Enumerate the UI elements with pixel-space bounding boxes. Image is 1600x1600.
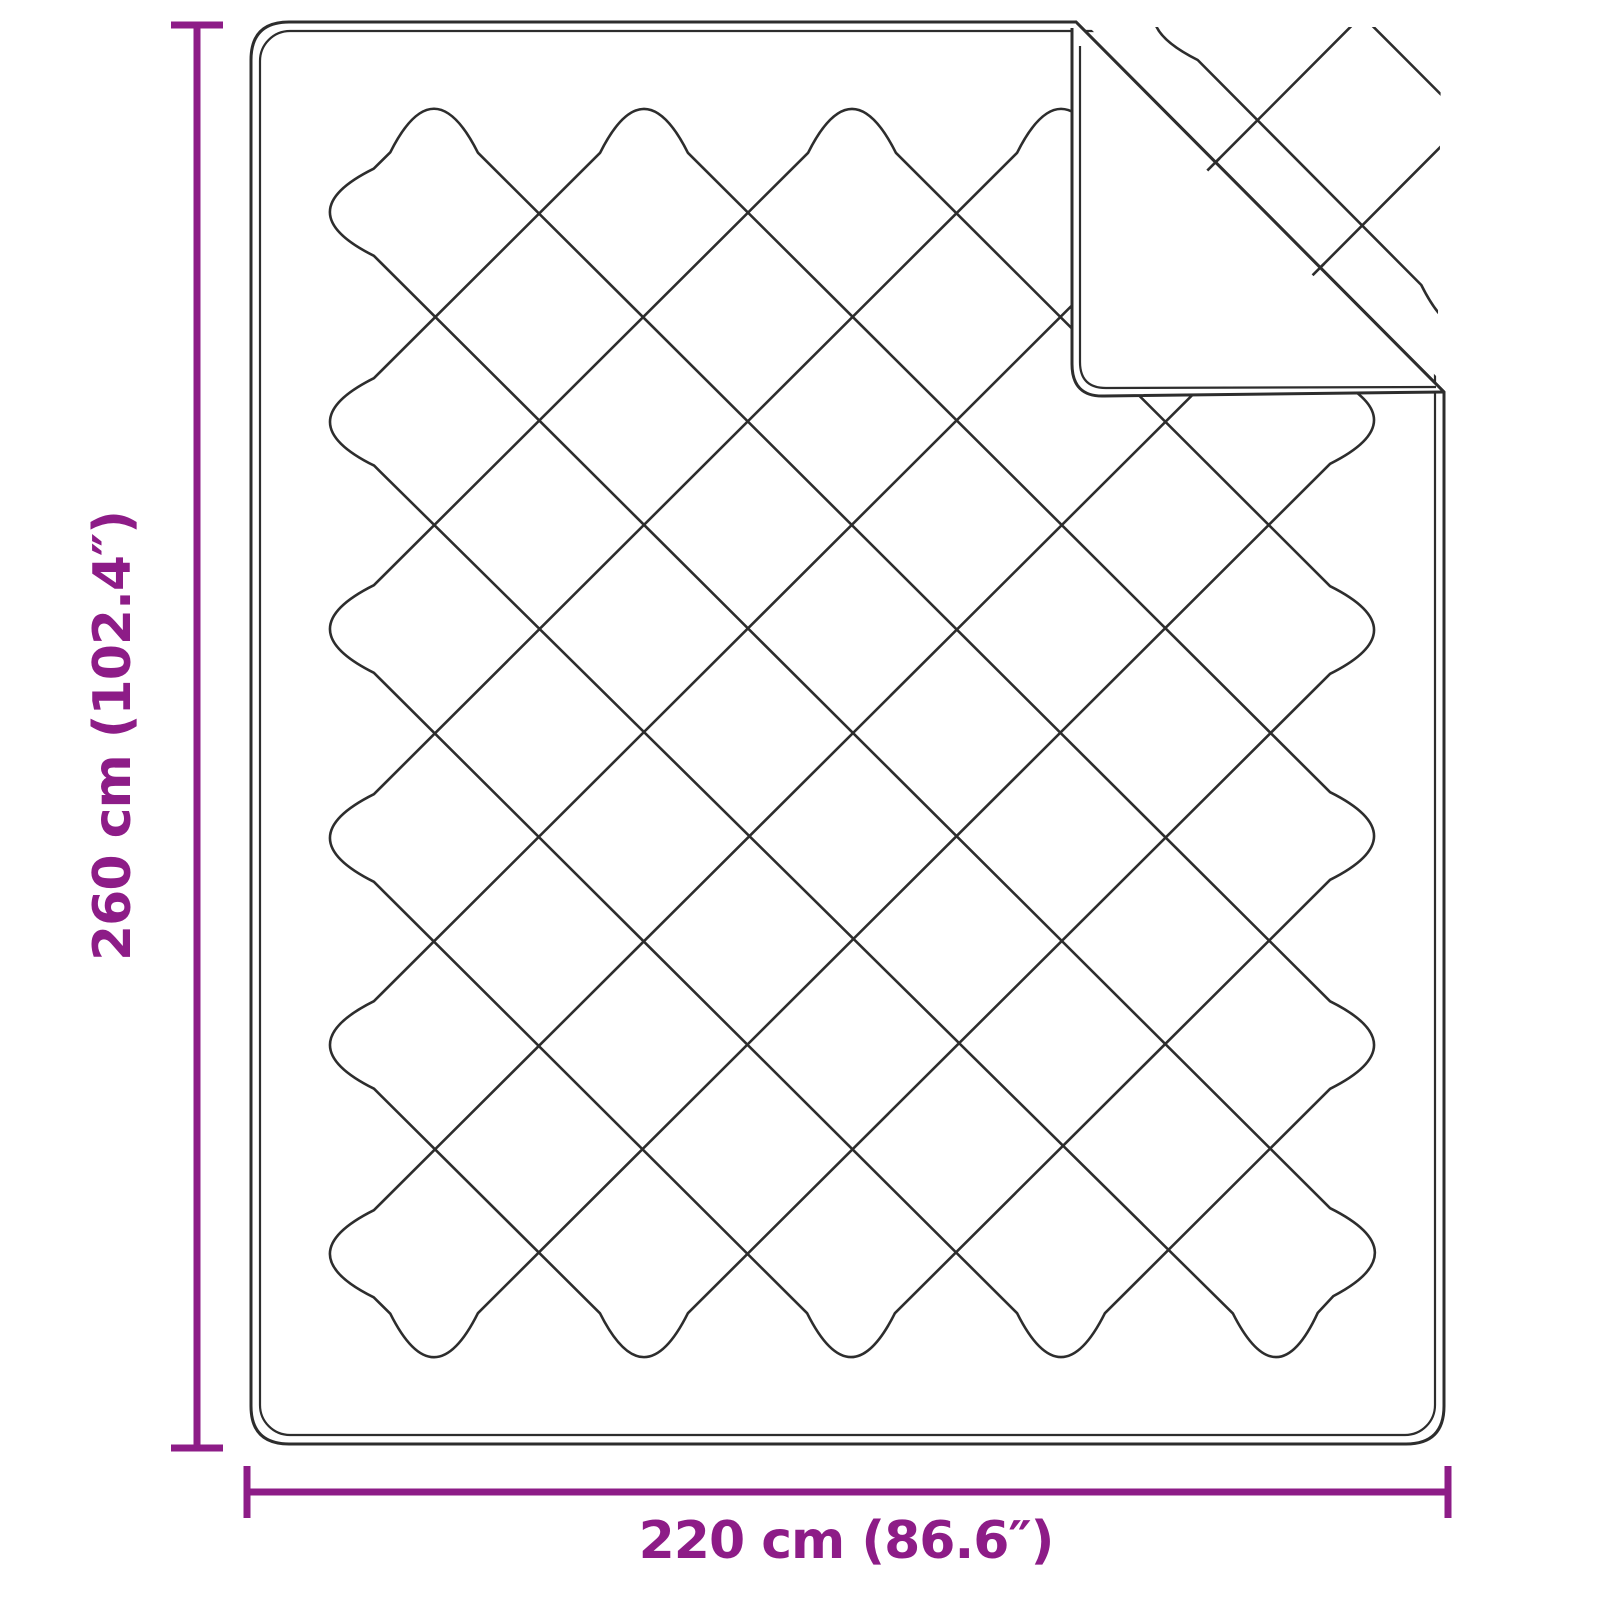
diagram-page: 260 cm (102.4″) 220 cm (86.6″) [0, 0, 1600, 1600]
width-dimension-label: 220 cm (86.6″) [639, 1511, 1054, 1571]
height-dimension-label: 260 cm (102.4″) [83, 511, 143, 961]
blanket [251, 0, 1600, 1444]
height-dimension: 260 cm (102.4″) [83, 25, 223, 1448]
width-dimension: 220 cm (86.6″) [247, 1466, 1448, 1571]
blanket-dimension-diagram: 260 cm (102.4″) 220 cm (86.6″) [0, 0, 1600, 1600]
